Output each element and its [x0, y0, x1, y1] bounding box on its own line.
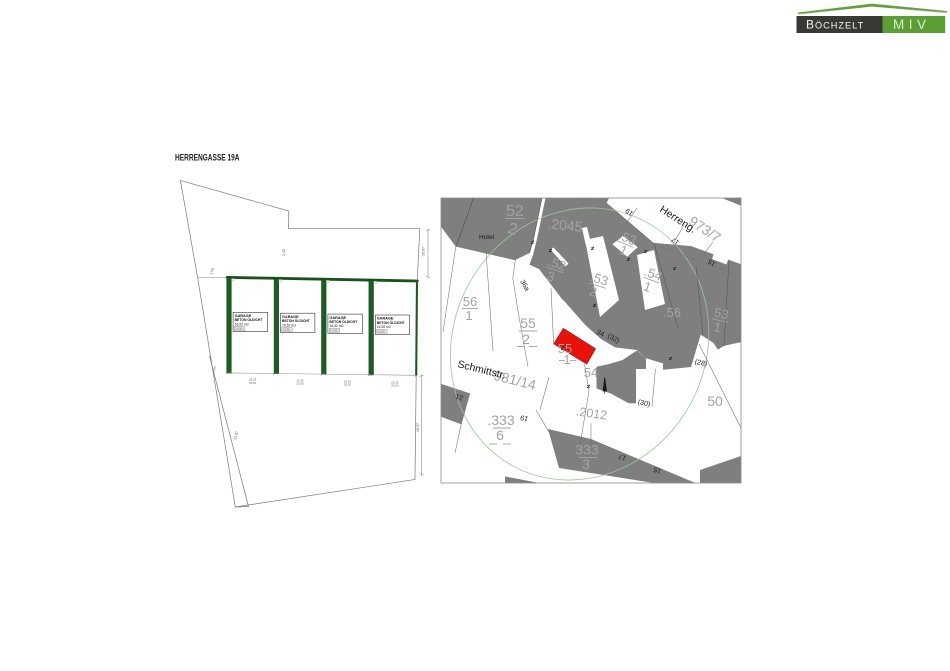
svg-text:50: 50 [707, 393, 723, 409]
svg-text:1:0,50: 1:0,50 [235, 327, 243, 331]
svg-text:3: 3 [582, 456, 590, 472]
svg-text:54: 54 [584, 365, 598, 380]
svg-text:16,52 m2: 16,52 m2 [282, 323, 296, 327]
svg-text:.56: .56 [663, 305, 681, 320]
svg-text:6: 6 [496, 427, 504, 443]
svg-text:2,40: 2,40 [282, 249, 286, 256]
svg-text:56: 56 [463, 294, 477, 309]
svg-text:1: 1 [563, 352, 570, 367]
svg-text:16,52 m2: 16,52 m2 [329, 324, 343, 328]
svg-text:1:0,50: 1:0,50 [283, 328, 291, 332]
svg-text:HERRENGASSE 19A: HERRENGASSE 19A [175, 153, 240, 164]
svg-text:Hotel: Hotel [479, 234, 495, 241]
svg-text:1:0,50: 1:0,50 [330, 328, 338, 332]
svg-text:31,97: 31,97 [233, 431, 239, 441]
svg-text:10,57: 10,57 [416, 423, 420, 432]
svg-text:16,52 m2: 16,52 m2 [377, 325, 391, 329]
svg-text:25,00: 25,00 [296, 382, 304, 386]
svg-text:16,52 m2: 16,52 m2 [235, 322, 249, 326]
svg-text:0,90: 0,90 [212, 365, 218, 372]
svg-text:.333: .333 [487, 412, 514, 428]
svg-text:25,00: 25,00 [391, 384, 399, 388]
svg-text:1: 1 [465, 308, 472, 323]
svg-text:10,07: 10,07 [422, 247, 426, 256]
svg-text:1:0,50: 1:0,50 [377, 329, 385, 333]
svg-text:MIV: MIV [893, 17, 931, 32]
svg-text:BÖCHZELT: BÖCHZELT [806, 18, 864, 32]
svg-text:2: 2 [522, 331, 530, 347]
svg-text:25,00: 25,00 [344, 383, 352, 387]
svg-text:25,00: 25,00 [249, 381, 257, 385]
svg-text:52: 52 [506, 203, 524, 220]
svg-text:1,00: 1,00 [209, 267, 215, 275]
svg-text:55: 55 [520, 315, 536, 331]
